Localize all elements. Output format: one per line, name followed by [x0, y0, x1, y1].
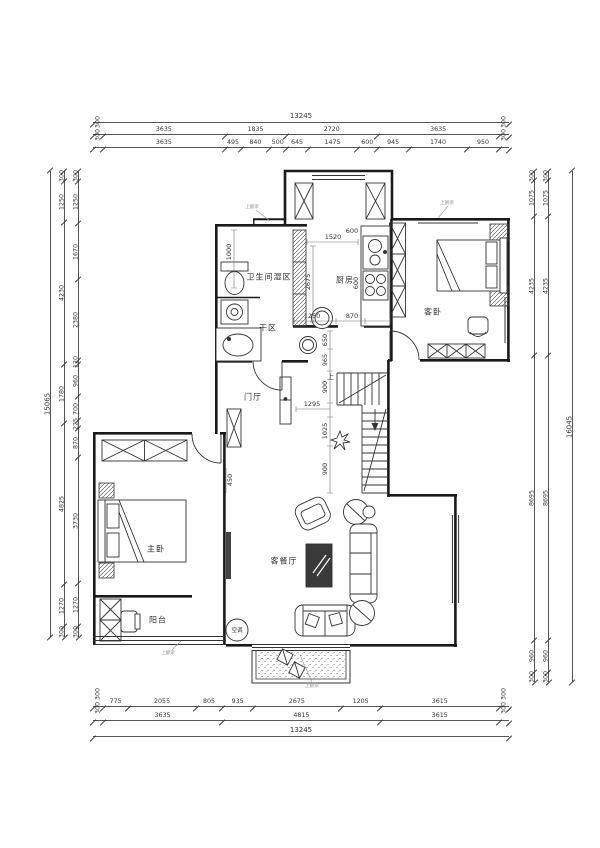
dim-total-right: 16045	[562, 171, 573, 682]
master-bedroom-door	[192, 434, 221, 463]
bay-closet-right	[366, 183, 385, 219]
stove	[363, 271, 388, 300]
bathroom-door	[253, 361, 282, 390]
dim-chain-bottom-2: 300363548153615300	[93, 712, 509, 721]
round-chair	[350, 601, 375, 626]
annotation: 上翻梁	[245, 204, 259, 210]
dim-chain-bottom-1: 3007752055805935267512053615300	[93, 698, 509, 707]
dim-chain-left-outer: 30012504230178048251270300	[56, 171, 65, 637]
interior-dim: 1250	[304, 312, 321, 320]
side-table	[363, 506, 375, 518]
balcony-window	[93, 637, 226, 645]
interior-dim: 870	[346, 312, 358, 320]
room-label-master-bedroom: 主卧	[147, 544, 165, 555]
interior-dim: 1520	[325, 233, 342, 241]
annotation: 上翻梁	[440, 200, 454, 206]
dim-chain-top-1: 3003635183527203635300	[93, 126, 509, 135]
washing-machine	[221, 300, 248, 324]
guest-bed	[437, 238, 507, 293]
annotation: 上翻梁	[161, 650, 175, 656]
dim-chain-right-outer: 300107542358695960300	[540, 171, 549, 682]
terrace-sliding-door	[252, 645, 350, 651]
floorplan-sheet: 卫生间湿区 干区 厨房 客卧 门厅 主卧 客餐厅 阳台 空调 上 1000 15…	[0, 0, 600, 848]
annotation: 上翻梁	[305, 683, 319, 689]
dim-chain-right-inner: 300107542358695960300	[526, 171, 535, 682]
plant-icon	[331, 431, 350, 450]
kitchen-sink	[363, 236, 388, 269]
master-bed	[98, 500, 186, 562]
dim-total-top: 13245	[93, 112, 509, 123]
interior-dim: 2675	[304, 274, 312, 291]
room-label-foyer: 门厅	[244, 392, 262, 403]
interior-dim: 600	[346, 227, 358, 235]
sofa-main	[350, 524, 377, 603]
interior-dim: 900	[321, 381, 329, 393]
armchair	[293, 495, 333, 533]
room-label-bathroom-wet: 卫生间湿区	[247, 272, 292, 283]
interior-dim: 450	[226, 474, 234, 486]
master-wardrobe	[102, 440, 187, 461]
interior-dim: 650	[321, 334, 329, 346]
interior-dim: 1025	[321, 423, 329, 440]
interior-dim: 1000	[225, 244, 233, 261]
stairs-direction-arrow	[372, 423, 379, 431]
floor-drain-basin	[300, 337, 317, 354]
dim-total-left: 15065	[40, 171, 51, 637]
ac-label: 空调	[231, 626, 242, 634]
balcony-cabinet	[100, 599, 121, 641]
toilet	[221, 262, 248, 295]
interior-dim: 900	[321, 463, 329, 475]
interior-dim: 965	[321, 354, 329, 366]
foyer-radiator	[227, 409, 241, 447]
tv-panel	[226, 532, 231, 579]
nightstand-top	[99, 483, 114, 498]
room-label-dry-area: 干区	[259, 323, 277, 334]
sofa-small	[295, 605, 355, 636]
dim-total-bottom: 13245	[93, 726, 509, 737]
guest-bench	[428, 344, 485, 358]
stairs-group	[337, 373, 388, 493]
interior-dim: 600	[352, 277, 360, 289]
bay-window	[312, 176, 365, 180]
coffee-table	[306, 544, 332, 587]
room-label-guest-bedroom: 客卧	[424, 307, 442, 318]
interior-dim: 1295	[304, 400, 321, 408]
dim-chain-top-2: 300363549584050064514756009451740950300	[93, 139, 509, 148]
room-label-balcony: 阳台	[149, 615, 167, 626]
closets-group	[100, 183, 485, 641]
vanity-sink	[216, 328, 261, 361]
dim-chain-left-inner: 3001250167023801209607002258703730127030…	[70, 171, 79, 637]
guest-chair	[468, 317, 488, 337]
balcony-desk	[121, 611, 140, 632]
bay-closet-left	[295, 183, 313, 219]
guest-bedroom-door	[390, 331, 419, 360]
room-label-living-dining: 客餐厅	[271, 556, 298, 567]
nightstand-bottom	[99, 563, 114, 578]
